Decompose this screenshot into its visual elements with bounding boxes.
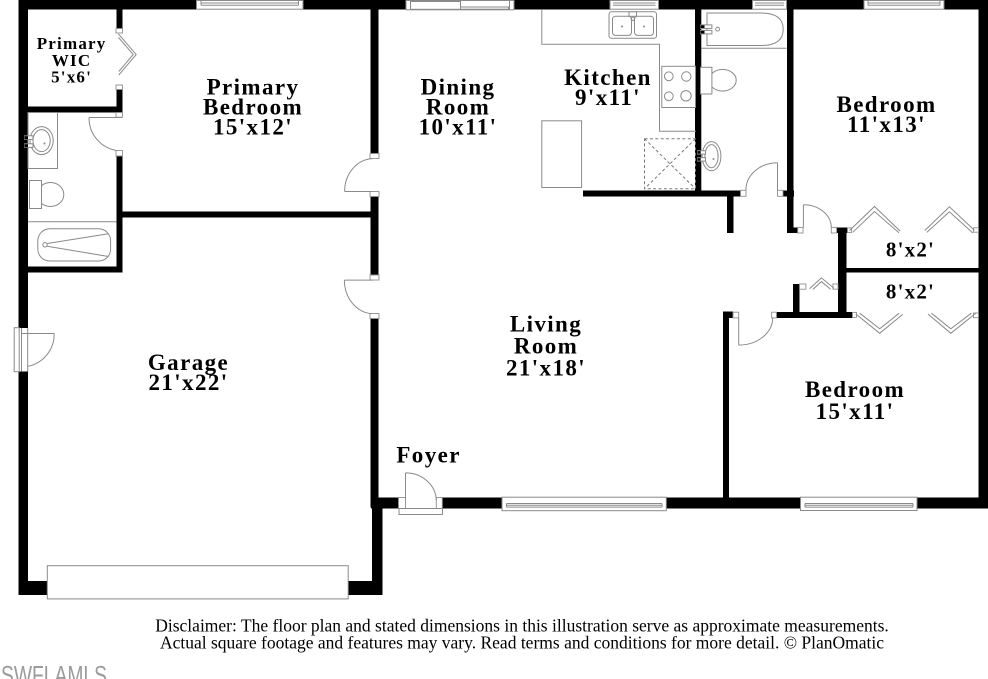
- svg-text:8'x2': 8'x2': [886, 238, 935, 262]
- svg-text:5'x6': 5'x6': [51, 68, 92, 87]
- svg-text:21'x22': 21'x22': [148, 370, 228, 395]
- svg-text:9'x11': 9'x11': [575, 85, 641, 110]
- svg-text:Foyer: Foyer: [396, 443, 460, 468]
- svg-text:15'x11': 15'x11': [816, 399, 895, 424]
- svg-text:11'x13': 11'x13': [847, 112, 926, 137]
- svg-text:8'x2': 8'x2': [886, 280, 935, 304]
- svg-text:Actual square footage and feat: Actual square footage and features may v…: [160, 633, 884, 653]
- svg-text:10'x11': 10'x11': [419, 115, 498, 140]
- svg-text:21'x18': 21'x18': [506, 356, 586, 381]
- svg-text:SWFLAMLS: SWFLAMLS: [1, 660, 107, 679]
- svg-text:15'x12': 15'x12': [213, 115, 293, 140]
